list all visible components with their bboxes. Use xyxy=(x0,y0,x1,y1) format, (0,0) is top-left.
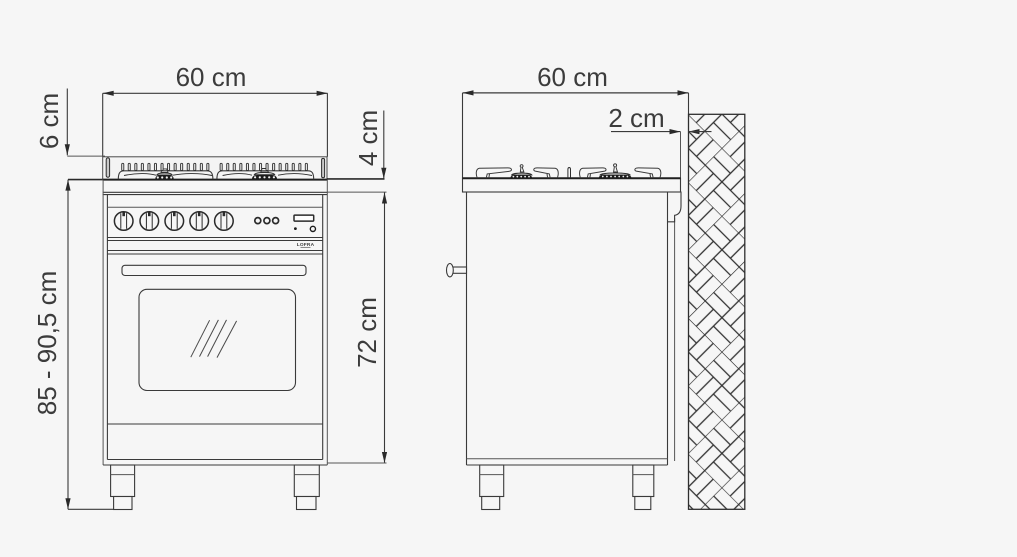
svg-text:2 cm: 2 cm xyxy=(608,103,664,133)
svg-text:72 cm: 72 cm xyxy=(352,297,382,368)
svg-text:60 cm: 60 cm xyxy=(537,62,608,92)
svg-text:85 - 90,5 cm: 85 - 90,5 cm xyxy=(32,271,62,416)
svg-text:60 cm: 60 cm xyxy=(176,62,247,92)
svg-text:6 cm: 6 cm xyxy=(34,93,64,149)
svg-text:4 cm: 4 cm xyxy=(353,110,383,166)
